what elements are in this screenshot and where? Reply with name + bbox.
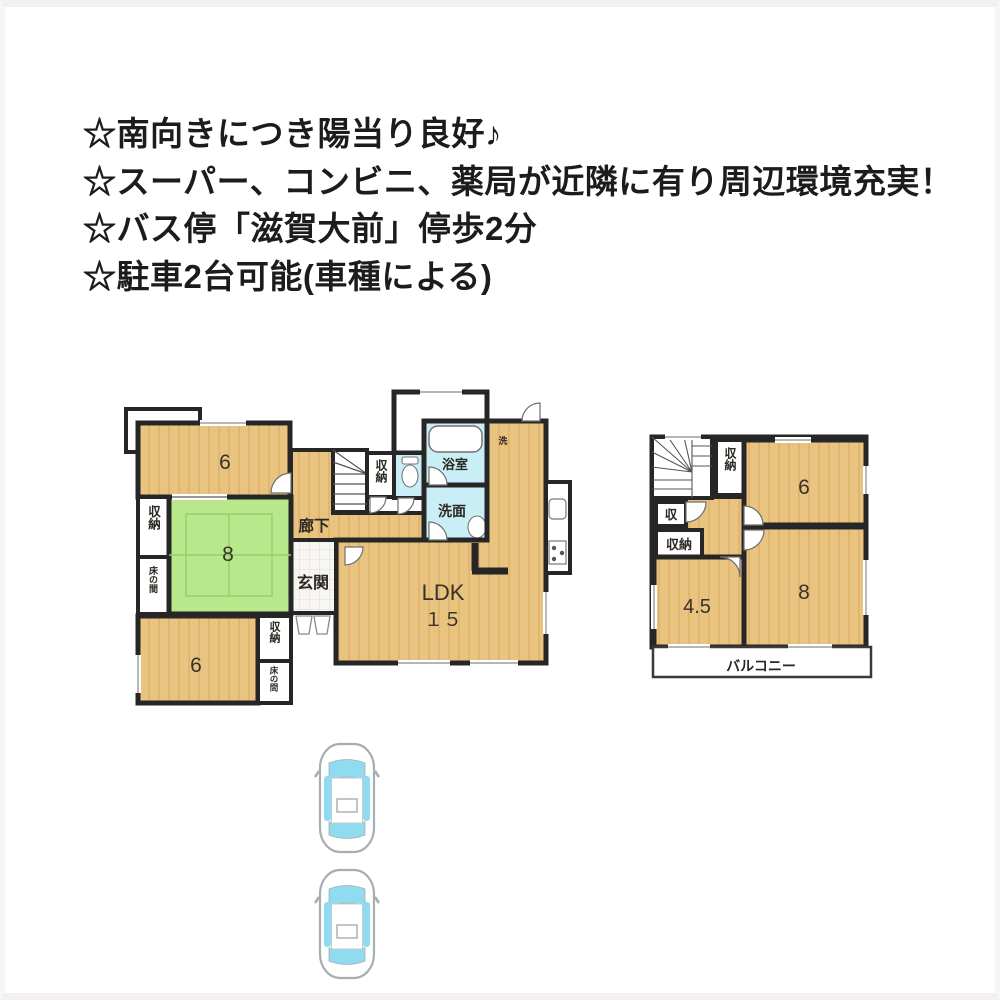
label-ldk-size: １５ bbox=[424, 610, 462, 631]
label-closet-bottom: 収納 bbox=[268, 621, 281, 644]
label-balcony: バルコニー bbox=[726, 658, 796, 674]
label-closet-left: 収納 bbox=[146, 504, 160, 531]
label-tokonoma-bottom: 床の間 bbox=[269, 665, 279, 692]
label-tokonoma-left: 床の間 bbox=[148, 565, 159, 594]
label-entrance: 玄関 bbox=[297, 573, 329, 592]
kitchen-sink-icon bbox=[549, 499, 566, 519]
listing-image: { "notes": { "lines": [ "☆南向きにつき陽当り良好♪",… bbox=[0, 0, 1000, 1000]
label-closet-top-2f: 収納 bbox=[723, 447, 737, 472]
kitchen-counter bbox=[546, 482, 570, 573]
label-bedroom8-2f: 8 bbox=[798, 581, 810, 604]
label-tatami8: 8 bbox=[222, 543, 234, 566]
label-hall-closet: 収納 bbox=[374, 459, 388, 484]
washbasin-icon bbox=[468, 516, 486, 538]
staircase-2f bbox=[652, 437, 712, 498]
toilet-bowl-icon bbox=[402, 465, 418, 487]
label-laundry: 洗 bbox=[498, 435, 507, 446]
label-closet-mid-2f: 収納 bbox=[666, 537, 692, 552]
parking-cars bbox=[315, 744, 379, 978]
staircase-1f bbox=[333, 450, 367, 512]
toilet-tank-icon bbox=[402, 457, 418, 464]
car-top-icon bbox=[315, 744, 379, 852]
label-closet-small-2f: 収 bbox=[665, 507, 678, 522]
room-bedroom6-top bbox=[138, 423, 290, 497]
floor2-plan: 収納 6 収 収納 4.5 8 バルコニー bbox=[651, 434, 871, 677]
label-bedroom6-bottom: 6 bbox=[190, 654, 202, 677]
room-toilet bbox=[394, 453, 424, 498]
label-room-4-5: 4.5 bbox=[683, 596, 711, 618]
floor1-plan: 6 収納 床の間 8 6 収納 床の間 廊下 玄関 収納 浴室 洗面 洗 LDK… bbox=[126, 389, 570, 703]
label-bedroom6-2f: 6 bbox=[798, 476, 810, 499]
entrance-door-icon bbox=[296, 616, 330, 634]
label-bath: 浴室 bbox=[442, 457, 468, 472]
floorplan-graphic: 6 収納 床の間 8 6 収納 床の間 廊下 玄関 収納 浴室 洗面 洗 LDK… bbox=[0, 0, 1000, 1000]
label-washroom: 洗面 bbox=[438, 503, 466, 519]
label-hallway: 廊下 bbox=[298, 516, 329, 535]
label-ldk: LDK bbox=[422, 580, 465, 605]
car-bottom-icon bbox=[315, 870, 379, 978]
label-bedroom6-top: 6 bbox=[219, 451, 231, 474]
bathtub-icon bbox=[429, 426, 482, 452]
